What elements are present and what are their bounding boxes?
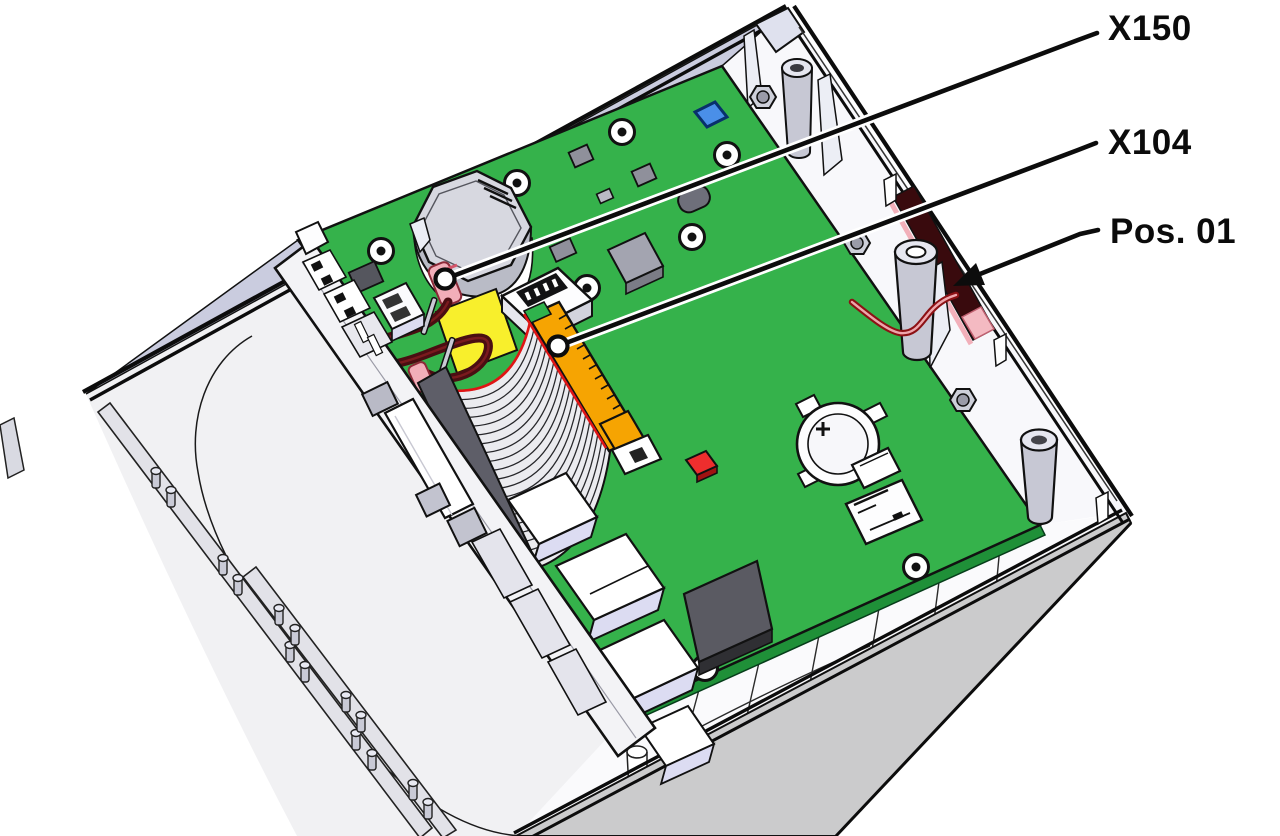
x150-leader-dot: [436, 270, 455, 289]
callout-label-pos01: Pos. 01: [1110, 212, 1236, 251]
enclosure-pcb-illustration: X150 X104 Pos. 01: [0, 0, 1280, 836]
callout-label-x104: X104: [1108, 123, 1192, 162]
wall-fin: [1096, 492, 1108, 524]
technical-illustration-page: X150 X104 Pos. 01: [0, 0, 1280, 836]
x104-leader-dot: [549, 337, 568, 356]
tray-left-tab: [0, 418, 24, 478]
wall-fin: [884, 174, 896, 206]
callout-pos01: Pos. 01: [953, 212, 1236, 286]
callout-label-x150: X150: [1108, 9, 1192, 48]
standoff-post: [1021, 430, 1057, 525]
standoff-post: [895, 240, 937, 360]
wall-fin: [994, 334, 1006, 366]
